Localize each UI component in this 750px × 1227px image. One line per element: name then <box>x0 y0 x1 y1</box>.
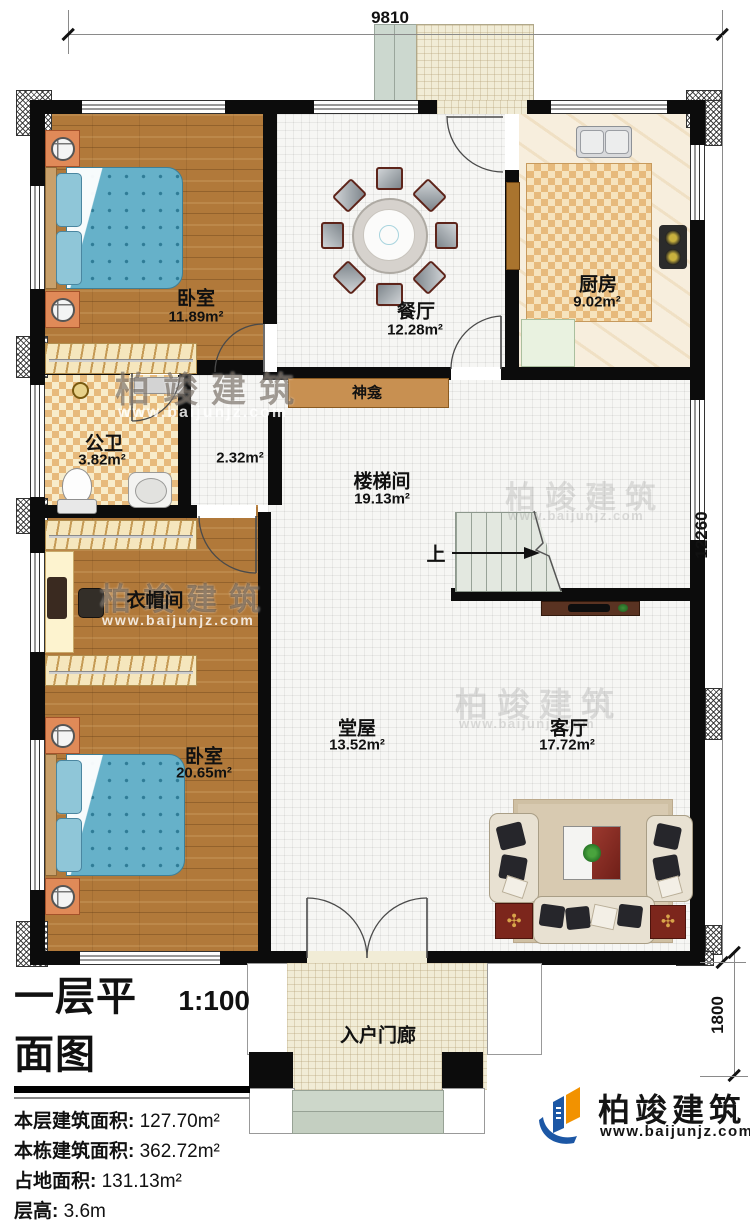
porch-base-left <box>249 1088 295 1134</box>
tv-icon <box>568 604 610 612</box>
window-left-bedroom1 <box>30 186 45 289</box>
watermark-url: www.baijunjz.com <box>118 404 288 422</box>
info-label: 占地面积: <box>14 1171 96 1192</box>
sofa-cushion <box>539 903 566 928</box>
coffee-table <box>563 826 621 880</box>
window-left-bathroom <box>30 385 45 497</box>
lamp-icon <box>51 885 75 909</box>
wall-corridor-hall <box>268 412 282 505</box>
room-label-stairwell: 楼梯间 <box>353 467 410 494</box>
room-area-bedroom2: 20.65m² <box>176 765 232 782</box>
info-row: 层高: 3.6m <box>14 1197 250 1227</box>
dining-chair <box>435 222 458 249</box>
info-value: 127.70m² <box>140 1111 220 1132</box>
door-gap-kitchen <box>505 114 519 170</box>
plan-title: 一层平面图 <box>14 964 168 1080</box>
sofa-cushion <box>495 821 526 851</box>
plant-icon <box>618 604 628 612</box>
room-label-bedroom1: 卧室 <box>177 284 215 311</box>
balcony-above <box>416 24 534 104</box>
watermark-url: www.baijunjz.com <box>102 612 255 628</box>
info-value: 362.72m² <box>140 1141 220 1162</box>
sofa-left <box>489 813 539 903</box>
bath-sink <box>128 472 172 508</box>
window-left-cloakroom <box>30 553 45 652</box>
dining-table-center <box>379 225 399 245</box>
side-table: ✣ <box>650 905 686 939</box>
sofa-cushion <box>653 823 682 851</box>
flue-strip <box>374 24 418 104</box>
wardrobe-cloakroom-top <box>45 520 197 550</box>
brand-url: www.baijunjz.com <box>600 1123 750 1140</box>
lamp-icon <box>51 298 75 322</box>
dim-line-bottomright <box>734 953 735 1076</box>
pier <box>705 688 722 740</box>
porch-pillar-left <box>249 1052 293 1088</box>
window-bottom-bedroom2 <box>80 951 220 965</box>
porch-step <box>292 1090 444 1113</box>
nightstand <box>45 878 80 915</box>
sofa-cushion <box>565 906 591 930</box>
pier <box>705 100 722 146</box>
bed-bedroom2 <box>45 754 185 876</box>
fridge <box>521 319 575 367</box>
title-rule-thin <box>14 1097 250 1099</box>
sofa-pillow <box>590 904 618 931</box>
burner-icon <box>665 249 681 265</box>
dim-ext <box>700 1076 748 1077</box>
dim-right-value: 12260 <box>692 495 712 575</box>
window-top-balcony-band <box>437 100 527 114</box>
bed-pillow <box>56 818 82 872</box>
window-left-bedroom2 <box>30 740 45 890</box>
bed-duvet <box>66 167 183 289</box>
info-value: 131.13m² <box>102 1171 182 1192</box>
porch-flank-right <box>487 963 542 1055</box>
floorplan-page: { "dimensions": { "top": "9810", "right"… <box>0 0 750 1154</box>
porch-flank-left <box>247 963 289 1055</box>
wardrobe-rod <box>49 671 193 674</box>
plant-icon <box>583 844 601 862</box>
bed-bedroom1 <box>45 167 183 289</box>
room-label-kitchen: 厨房 <box>579 270 617 297</box>
info-label: 本栋建筑面积: <box>14 1141 134 1162</box>
room-area-stairwell: 19.13m² <box>354 491 410 508</box>
room-area-kitchen: 9.02m² <box>573 294 621 311</box>
bed-pillow <box>56 760 82 814</box>
wall-kitchen-bottom <box>501 367 690 380</box>
side-table: ✣ <box>495 903 533 939</box>
dining-chair <box>321 222 344 249</box>
brand-logo: 柏竣建筑 www.baijunjz.com <box>536 1083 746 1149</box>
plan-scale: 1:100 <box>178 985 250 1017</box>
bed-pillow <box>56 173 82 227</box>
watermark-url: www.baijunjz.com <box>508 508 644 523</box>
door-gap-dining <box>451 367 501 380</box>
lamp-icon <box>51 724 75 748</box>
door-gap-cloakroom <box>197 505 256 518</box>
info-label: 本层建筑面积: <box>14 1111 134 1132</box>
room-area-dining: 12.28m² <box>387 322 443 339</box>
title-rule-thick <box>14 1086 250 1093</box>
room-label-dining: 餐厅 <box>397 297 435 324</box>
dressing-items <box>47 577 67 619</box>
room-label-porch: 入户门廊 <box>340 1021 416 1048</box>
tv-cabinet <box>541 601 640 616</box>
sofa-right <box>646 815 693 902</box>
room-area-bathroom: 3.82m² <box>78 452 126 469</box>
stairs-up-label: 上 <box>426 540 445 567</box>
burner-icon <box>665 230 681 246</box>
dim-top-value: 9810 <box>340 8 440 28</box>
kitchen-door-leaf <box>506 182 520 270</box>
wardrobe-cloakroom-bottom <box>45 655 197 686</box>
info-row: 本栋建筑面积: 362.72m² <box>14 1137 250 1167</box>
porch-step <box>292 1111 444 1134</box>
window-right-kitchen <box>690 145 705 220</box>
brand-logo-icon <box>536 1083 594 1147</box>
nightstand <box>45 291 80 328</box>
bath-sink-basin <box>135 478 167 504</box>
window-top-dining <box>314 100 418 114</box>
kitchen-sink <box>576 126 632 158</box>
title-block: 一层平面图 1:100 本层建筑面积: 127.70m² 本栋建筑面积: 362… <box>14 964 250 1227</box>
sofa-cushion <box>617 904 644 929</box>
bed-pillow <box>56 231 82 285</box>
dim-line-right <box>722 35 723 963</box>
nightstand <box>45 717 80 754</box>
room-area-bedroom1: 11.89m² <box>168 309 223 326</box>
room-label-cloakroom: 衣帽间 <box>126 586 183 613</box>
lamp-icon <box>51 137 75 161</box>
sink-basin <box>580 130 604 154</box>
nightstand <box>45 130 80 167</box>
window-top-kitchen <box>551 100 667 114</box>
window-top-bedroom1 <box>82 100 225 114</box>
pendant-lamp-icon <box>72 382 89 399</box>
porch-pillar-right <box>442 1052 483 1088</box>
sofa-pillow <box>657 875 683 898</box>
info-row: 占地面积: 131.13m² <box>14 1167 250 1197</box>
wardrobe-rod <box>49 535 193 538</box>
dining-chair <box>376 167 403 190</box>
porch-base-right <box>442 1088 485 1134</box>
info-row: 本层建筑面积: 127.70m² <box>14 1107 250 1137</box>
info-value: 3.6m <box>64 1201 106 1222</box>
room-area-corridor: 2.32m² <box>216 450 264 467</box>
dim-ext <box>700 962 746 963</box>
dim-bottomright-value: 1800 <box>708 985 728 1045</box>
flue-strip-divider <box>394 24 395 102</box>
room-area-living: 17.72m² <box>539 737 595 754</box>
toilet-tank <box>57 499 97 514</box>
room-label-shrine: 神龛 <box>352 382 382 403</box>
sofa-bottom <box>533 896 655 944</box>
bed-duvet <box>66 754 185 876</box>
stove <box>659 225 687 269</box>
dim-line-top <box>68 34 722 35</box>
info-label: 层高: <box>14 1201 58 1222</box>
room-area-hall: 13.52m² <box>329 737 385 754</box>
sink-basin <box>605 130 629 154</box>
